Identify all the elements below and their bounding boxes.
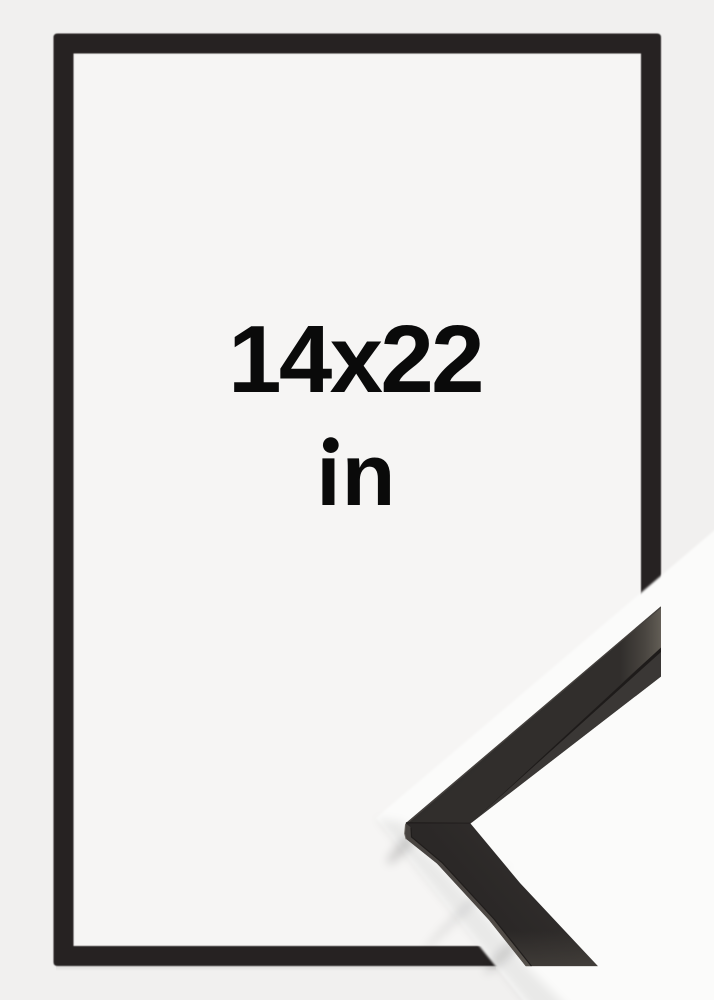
svg-text:14x22: 14x22: [228, 306, 482, 413]
